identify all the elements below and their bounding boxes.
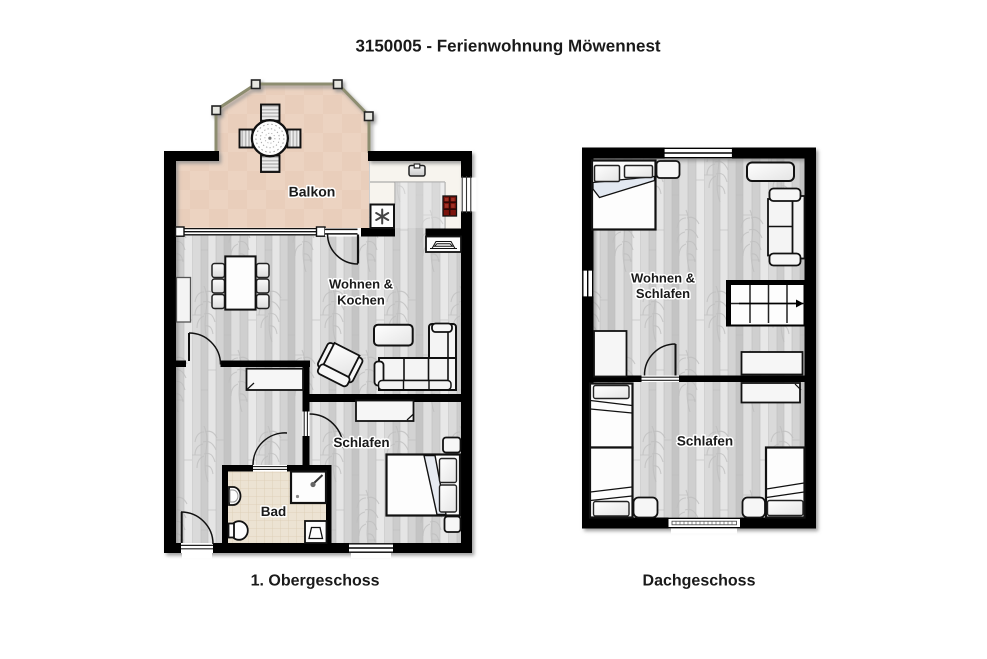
svg-text:1. Obergeschoss: 1. Obergeschoss [251,573,380,590]
svg-text:Schlafen: Schlafen [636,286,690,301]
svg-text:Bad: Bad [261,504,287,519]
svg-text:3150005 - Ferienwohnung Möwenn: 3150005 - Ferienwohnung Möwennest [355,37,660,56]
svg-text:Dachgeschoss: Dachgeschoss [643,573,756,590]
svg-text:Wohnen &: Wohnen & [631,271,695,286]
svg-text:Schlafen: Schlafen [677,434,733,449]
svg-text:Wohnen &: Wohnen & [329,276,393,291]
svg-text:Balkon: Balkon [289,184,336,200]
svg-text:Kochen: Kochen [337,293,385,308]
svg-text:Schlafen: Schlafen [333,435,389,450]
